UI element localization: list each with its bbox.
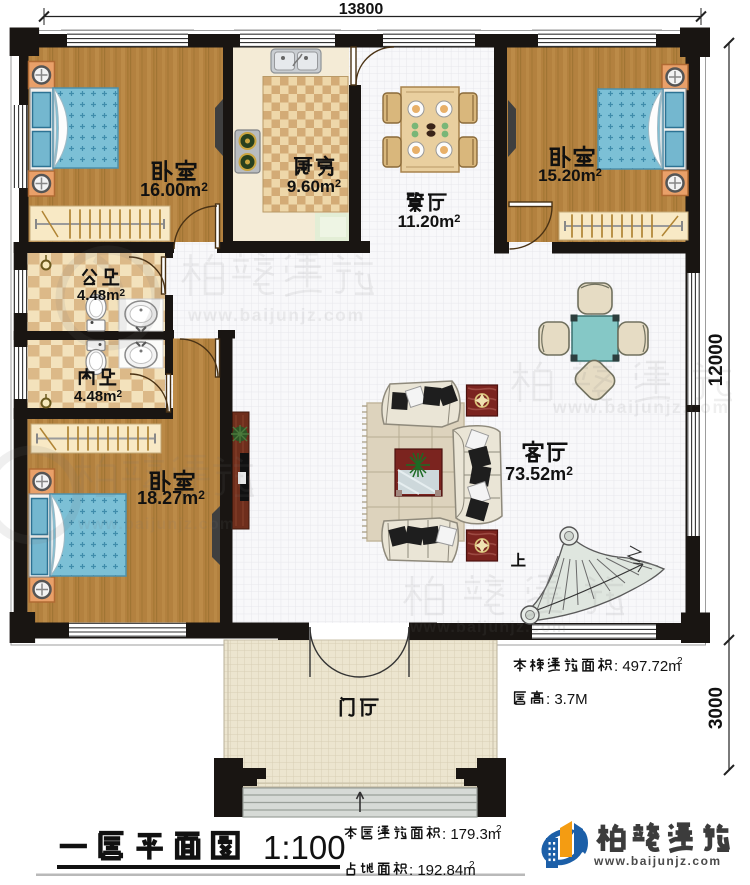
svg-text:: 497.72m: : 497.72m	[614, 658, 681, 675]
svg-text:18.27m2: 18.27m2	[137, 488, 205, 508]
svg-text:1:100: 1:100	[263, 829, 346, 866]
svg-text:www.baijunjz.com: www.baijunjz.com	[593, 854, 722, 868]
svg-text:11.20m2: 11.20m2	[398, 212, 461, 231]
svg-text:2: 2	[677, 656, 683, 667]
svg-text:2: 2	[496, 824, 502, 835]
svg-text:15.20m2: 15.20m2	[538, 166, 602, 185]
svg-text:73.52m2: 73.52m2	[505, 464, 573, 484]
svg-text:www.baijunjz.com: www.baijunjz.com	[187, 305, 365, 325]
svg-text:9.60m2: 9.60m2	[287, 177, 341, 196]
svg-text:: 3.7M: : 3.7M	[546, 691, 588, 708]
svg-text:2: 2	[469, 860, 475, 871]
svg-text:www.baijunjz.com: www.baijunjz.com	[409, 619, 567, 636]
svg-text:www.baijunjz.com: www.baijunjz.com	[552, 397, 730, 417]
svg-text:4.48m2: 4.48m2	[77, 287, 126, 304]
svg-text:www.baijunjz.com: www.baijunjz.com	[77, 516, 235, 533]
svg-text:16.00m2: 16.00m2	[140, 180, 208, 200]
svg-text:: 179.3m: : 179.3m	[442, 826, 500, 843]
svg-text:4.48m2: 4.48m2	[74, 388, 123, 405]
svg-text:3000: 3000	[706, 687, 727, 729]
svg-text:13800: 13800	[339, 1, 384, 18]
svg-text:: 192.84m: : 192.84m	[409, 862, 476, 879]
